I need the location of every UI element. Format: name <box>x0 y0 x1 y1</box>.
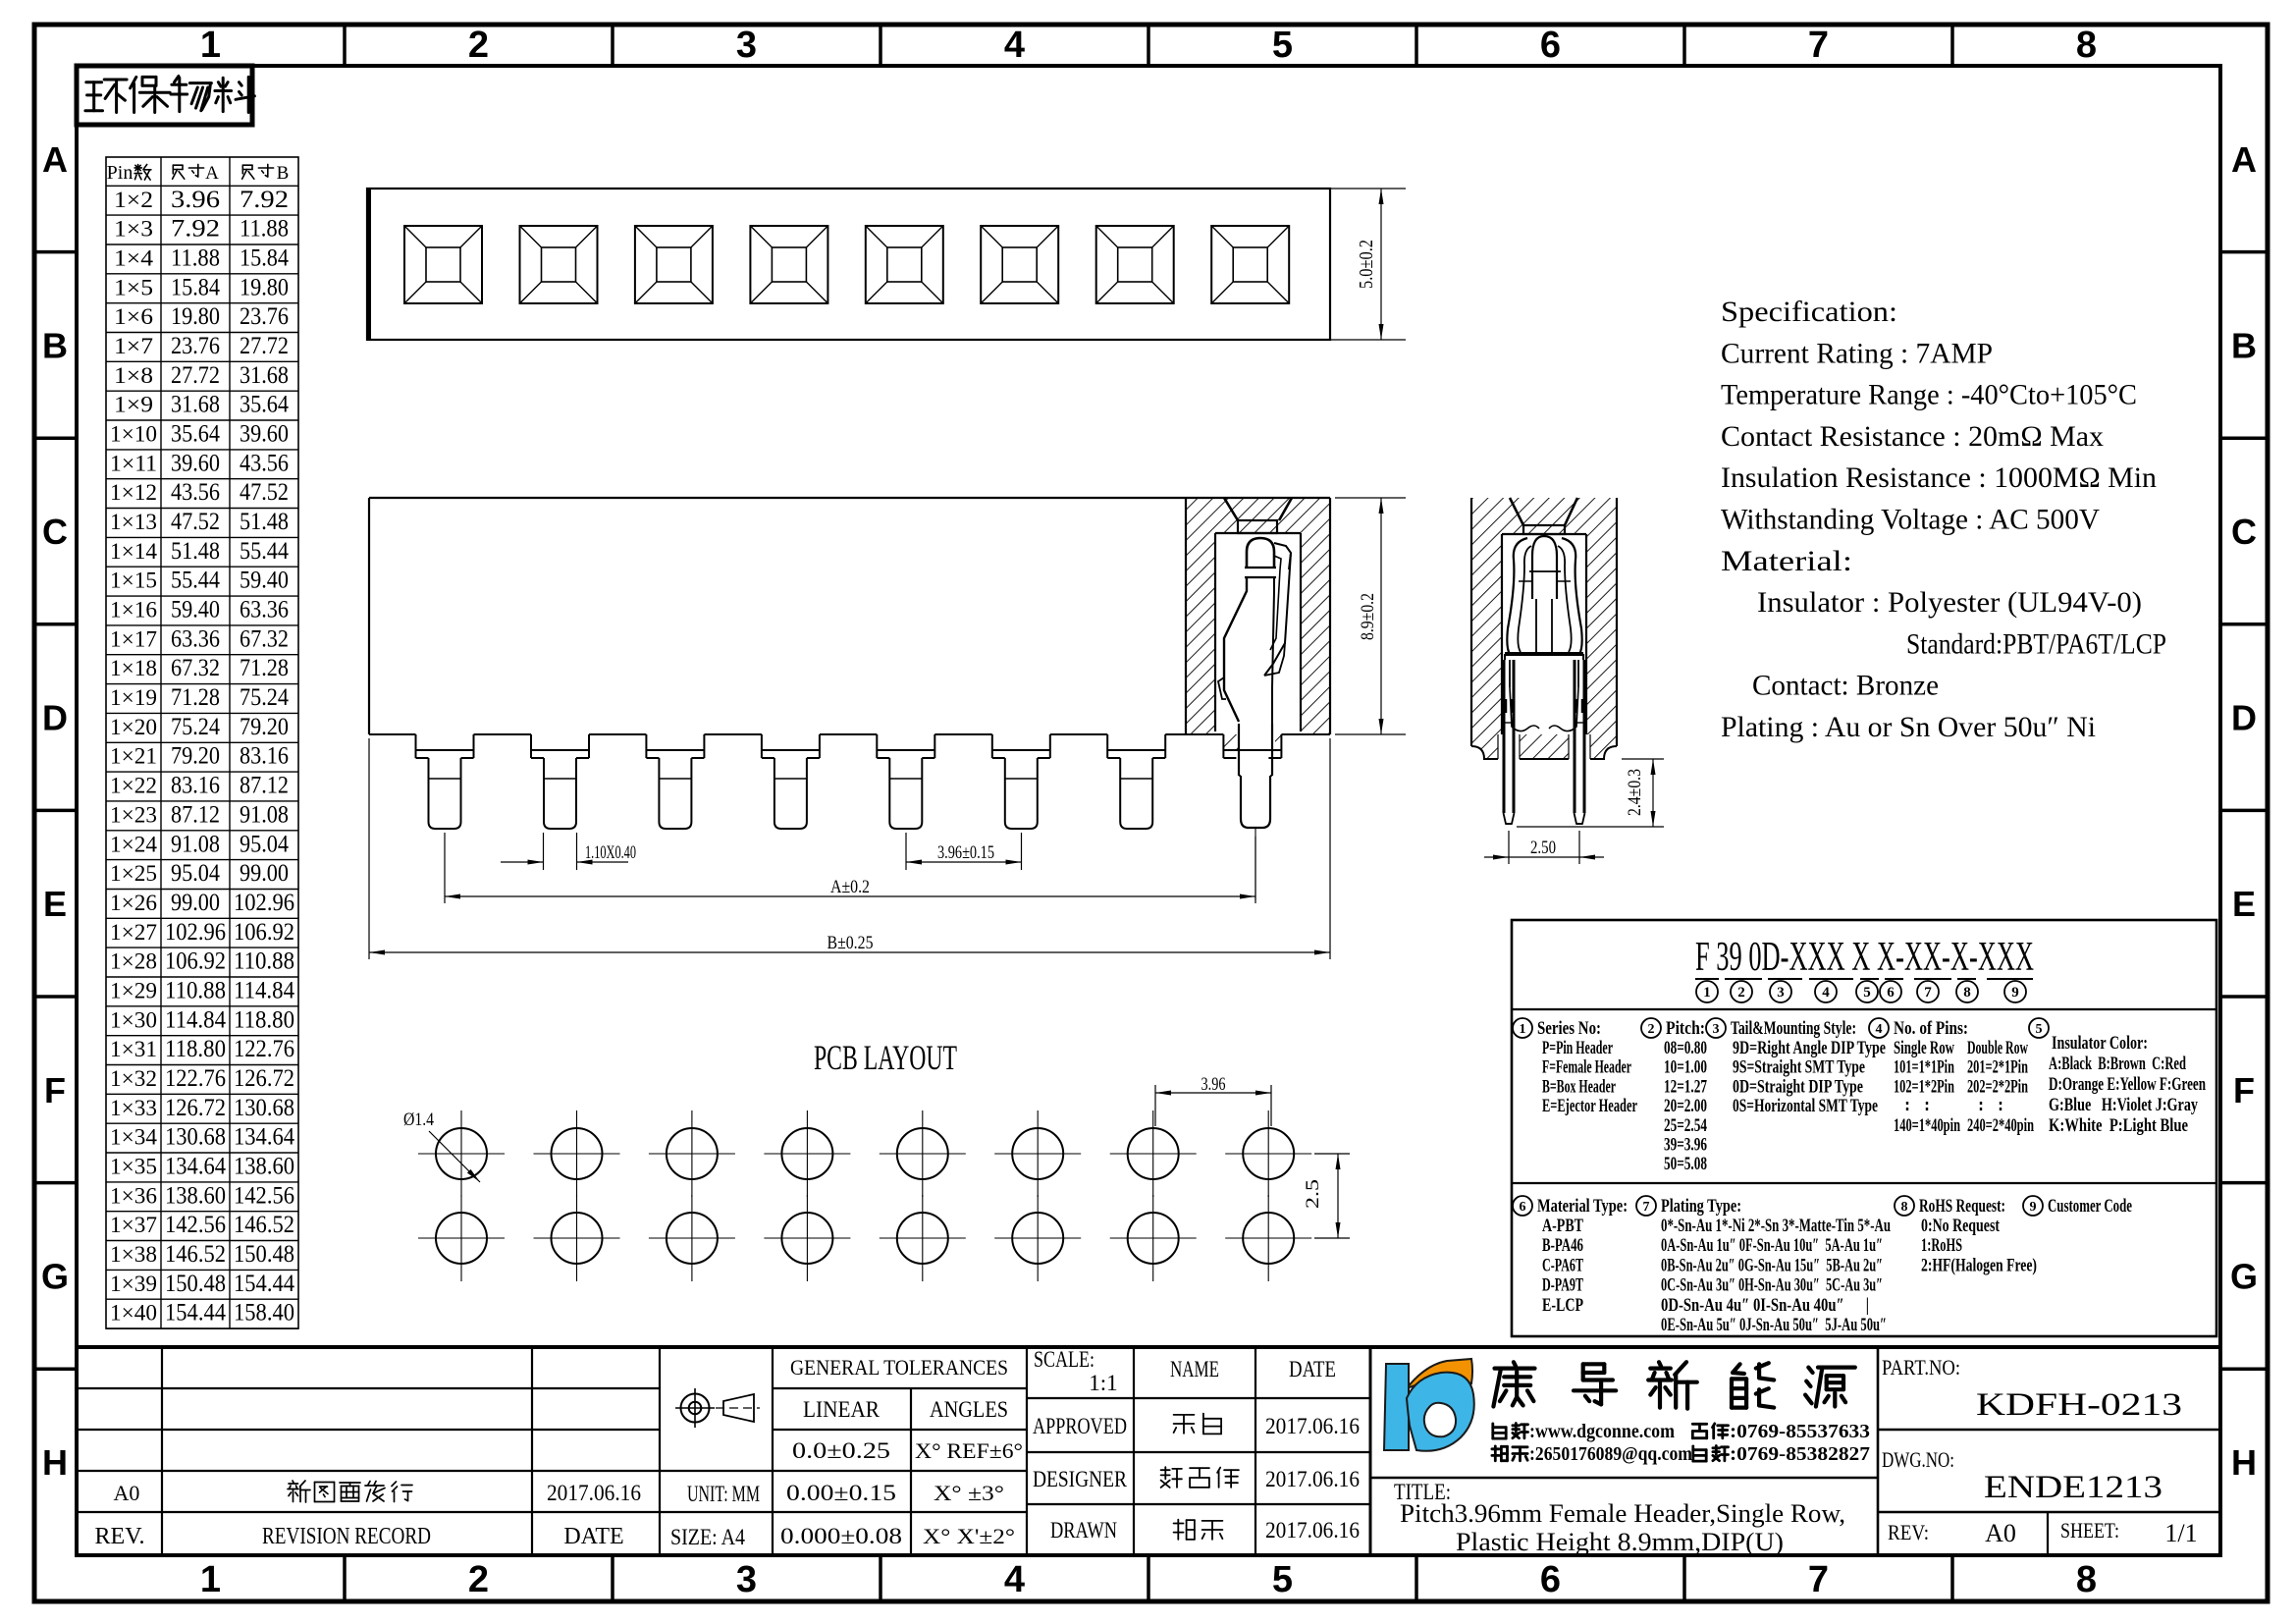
svg-text:5: 5 <box>1863 985 1871 1001</box>
svg-text:87.12: 87.12 <box>171 801 220 828</box>
svg-text:7: 7 <box>1924 985 1932 1001</box>
svg-text:1×32: 1×32 <box>110 1066 157 1091</box>
svg-text:202=2*2Pin: 202=2*2Pin <box>1967 1076 2028 1097</box>
svg-text:67.32: 67.32 <box>171 655 220 681</box>
svg-text:1×39: 1×39 <box>110 1272 157 1296</box>
svg-text:154.44: 154.44 <box>234 1271 294 1297</box>
svg-text:95.04: 95.04 <box>171 860 220 887</box>
svg-text:4: 4 <box>1876 1022 1883 1037</box>
svg-text:39.60: 39.60 <box>171 450 220 476</box>
svg-text:A: A <box>205 163 219 184</box>
svg-text:11.88: 11.88 <box>171 245 220 272</box>
svg-text:134.64: 134.64 <box>234 1124 294 1151</box>
svg-text:122.76: 122.76 <box>234 1036 294 1062</box>
svg-text:43.56: 43.56 <box>240 450 289 476</box>
svg-text:23.76: 23.76 <box>240 303 289 330</box>
svg-text:1×23: 1×23 <box>110 802 157 827</box>
svg-text:39.60: 39.60 <box>240 421 289 448</box>
svg-text:0C-Sn-Au 3u″ 0H-Sn-Au 30u″ 5C: 0C-Sn-Au 3u″ 0H-Sn-Au 30u″ 5C-Au 3u″ <box>1661 1275 1883 1296</box>
svg-text:Material Type:: Material Type: <box>1537 1196 1628 1217</box>
svg-text:F=Female Header: F=Female Header <box>1542 1057 1631 1078</box>
svg-text:63.36: 63.36 <box>171 625 220 652</box>
svg-text:KDFH-0213: KDFH-0213 <box>1976 1387 2182 1423</box>
svg-text:C: C <box>2231 512 2257 552</box>
svg-text:0:No Request: 0:No Request <box>1921 1216 2000 1236</box>
svg-text:20=2.00: 20=2.00 <box>1664 1096 1707 1116</box>
svg-text:1:1: 1:1 <box>1089 1371 1117 1395</box>
svg-text:35.64: 35.64 <box>171 421 220 448</box>
svg-text:2.5: 2.5 <box>1303 1179 1323 1209</box>
svg-text:1×35: 1×35 <box>110 1155 157 1179</box>
svg-text:Ø1.4: Ø1.4 <box>403 1110 434 1130</box>
svg-text:7.92: 7.92 <box>171 216 220 243</box>
svg-text:7: 7 <box>1643 1200 1650 1215</box>
svg-text:23.76: 23.76 <box>171 333 220 359</box>
svg-text:79.20: 79.20 <box>171 743 220 770</box>
svg-text:1×30: 1×30 <box>110 1007 157 1032</box>
svg-text:140=1*40pin: 140=1*40pin <box>1894 1115 1960 1136</box>
svg-text:150.48: 150.48 <box>234 1241 294 1268</box>
svg-text:47.52: 47.52 <box>171 509 220 535</box>
svg-text:Insulator Color:: Insulator Color: <box>2052 1033 2148 1054</box>
svg-text:A: A <box>2231 139 2257 180</box>
svg-text:122.76: 122.76 <box>165 1065 226 1092</box>
svg-text:1×16: 1×16 <box>110 598 157 623</box>
svg-text:102=1*2Pin: 102=1*2Pin <box>1894 1076 1954 1097</box>
svg-text:Pitch3.96mm Female Header,Sing: Pitch3.96mm Female Header,Single Row, <box>1400 1499 1845 1528</box>
svg-text:1/1: 1/1 <box>2164 1519 2197 1547</box>
svg-text:1×10: 1×10 <box>110 422 157 447</box>
svg-text:1×28: 1×28 <box>110 949 157 974</box>
svg-text:51.48: 51.48 <box>240 509 289 535</box>
svg-text:Plastic Height 8.9mm,DIP(U): Plastic Height 8.9mm,DIP(U) <box>1456 1528 1784 1556</box>
svg-text:Material:: Material: <box>1721 545 1852 577</box>
svg-text:0D-Sn-Au 4u″ 0I-Sn-Au 40u″: 0D-Sn-Au 4u″ 0I-Sn-Au 40u″ | <box>1661 1295 1869 1316</box>
svg-text:27.72: 27.72 <box>240 333 289 359</box>
svg-text:75.24: 75.24 <box>240 684 289 711</box>
svg-text:D:Orange E:Yellow F:Green: D:Orange E:Yellow F:Green <box>2049 1074 2206 1095</box>
svg-text:Plating : Au or Sn Over 50u″ N: Plating : Au or Sn Over 50u″ Ni <box>1721 711 2096 743</box>
svg-text:150.48: 150.48 <box>165 1271 226 1297</box>
svg-text:F 39 0D-XXX X X-XX-X-XXX: F 39 0D-XXX X X-XX-X-XXX <box>1695 935 2034 980</box>
svg-text:D-PA9T: D-PA9T <box>1542 1275 1583 1296</box>
svg-text:0B-Sn-Au 2u″ 0G-Sn-Au 15u″ 5B: 0B-Sn-Au 2u″ 0G-Sn-Au 15u″ 5B-Au 2u″ <box>1661 1255 1883 1275</box>
svg-text:1×20: 1×20 <box>110 715 157 739</box>
svg-text:101=1*1Pin: 101=1*1Pin <box>1894 1057 1954 1078</box>
svg-text:1×9: 1×9 <box>114 393 153 417</box>
svg-text:9: 9 <box>2030 1200 2037 1215</box>
svg-text:91.08: 91.08 <box>171 831 220 857</box>
svg-text:B: B <box>2231 325 2257 365</box>
svg-text:1×3: 1×3 <box>114 217 153 242</box>
svg-text:5: 5 <box>1272 25 1293 66</box>
svg-text:91.08: 91.08 <box>240 801 289 828</box>
svg-text:1×21: 1×21 <box>110 744 157 769</box>
svg-text:ANGLES: ANGLES <box>930 1397 1008 1422</box>
svg-text:A±0.2: A±0.2 <box>830 877 870 897</box>
svg-text:Series No:: Series No: <box>1537 1018 1601 1039</box>
svg-text:Pin: Pin <box>107 162 133 184</box>
svg-text:12=1.27: 12=1.27 <box>1664 1076 1707 1097</box>
svg-text:ENDE1213: ENDE1213 <box>1984 1470 2163 1505</box>
svg-text::www.dgconne.com: :www.dgconne.com <box>1529 1421 1675 1442</box>
svg-text:99.00: 99.00 <box>240 860 289 887</box>
svg-text:75.24: 75.24 <box>171 714 220 740</box>
svg-text:3: 3 <box>736 25 757 66</box>
svg-text:142.56: 142.56 <box>234 1182 294 1209</box>
svg-text:2.4±0.3: 2.4±0.3 <box>1625 769 1645 816</box>
svg-text:3.96: 3.96 <box>171 187 220 213</box>
svg-text:106.92: 106.92 <box>234 919 294 946</box>
svg-text:Current Rating : 7AMP: Current Rating : 7AMP <box>1721 337 1993 369</box>
svg-text:31.68: 31.68 <box>240 362 289 389</box>
svg-text:0E-Sn-Au 5u″ 0J-Sn-Au 50u″ 5J: 0E-Sn-Au 5u″ 0J-Sn-Au 50u″ 5J-Au 50u″ <box>1661 1315 1887 1335</box>
svg-text:Withstanding Voltage : AC 500V: Withstanding Voltage : AC 500V <box>1721 504 2100 536</box>
svg-text:25=2.54: 25=2.54 <box>1664 1115 1707 1136</box>
svg-text:55.44: 55.44 <box>171 568 220 594</box>
svg-text:55.44: 55.44 <box>240 538 289 565</box>
svg-text:83.16: 83.16 <box>171 773 220 799</box>
svg-text:DATE: DATE <box>1289 1357 1336 1381</box>
svg-text:1×7: 1×7 <box>114 334 153 358</box>
svg-text:5.0±0.2: 5.0±0.2 <box>1356 240 1377 289</box>
svg-text:H: H <box>2231 1442 2257 1483</box>
svg-text:71.28: 71.28 <box>240 655 289 681</box>
svg-text:5: 5 <box>2036 1022 2043 1037</box>
svg-text:114.84: 114.84 <box>234 978 294 1004</box>
svg-text:95.04: 95.04 <box>240 831 289 857</box>
svg-text:SCALE:: SCALE: <box>1034 1347 1095 1372</box>
svg-text:50=5.08: 50=5.08 <box>1664 1154 1707 1174</box>
svg-text:6: 6 <box>1540 1559 1561 1600</box>
svg-text:UNIT: MM: UNIT: MM <box>687 1482 760 1506</box>
svg-text:4: 4 <box>1822 985 1830 1001</box>
svg-text:130.68: 130.68 <box>165 1124 226 1151</box>
svg-text:Pitch:: Pitch: <box>1666 1018 1705 1039</box>
svg-text:P=Pin Header: P=Pin Header <box>1542 1038 1613 1058</box>
svg-text:08=0.80: 08=0.80 <box>1664 1038 1707 1058</box>
svg-text:1×36: 1×36 <box>110 1183 157 1208</box>
svg-text:REV:: REV: <box>1888 1520 1929 1544</box>
svg-text:SIZE: A4: SIZE: A4 <box>670 1525 745 1549</box>
svg-text:9D=Right Angle DIP Type: 9D=Right Angle DIP Type <box>1733 1038 1886 1058</box>
svg-text:Plating Type:: Plating Type: <box>1661 1196 1741 1217</box>
svg-text:X° ±3°: X° ±3° <box>934 1481 1004 1505</box>
svg-text:LINEAR: LINEAR <box>803 1397 881 1422</box>
svg-text:3: 3 <box>1777 985 1785 1001</box>
svg-text:F: F <box>44 1070 66 1110</box>
svg-text:H: H <box>42 1442 68 1483</box>
svg-text:3: 3 <box>736 1559 757 1600</box>
svg-text:1×4: 1×4 <box>114 246 154 271</box>
svg-text:146.52: 146.52 <box>234 1212 294 1238</box>
svg-text:83.16: 83.16 <box>240 743 289 770</box>
svg-text:31.68: 31.68 <box>171 392 220 418</box>
svg-text:63.36: 63.36 <box>240 597 289 623</box>
svg-text:130.68: 130.68 <box>234 1095 294 1121</box>
svg-text:201=2*1Pin: 201=2*1Pin <box>1967 1057 2028 1078</box>
svg-text:A0: A0 <box>114 1481 140 1505</box>
svg-text:1×18: 1×18 <box>110 656 157 680</box>
svg-text:138.60: 138.60 <box>165 1182 226 1209</box>
svg-text:1: 1 <box>1520 1022 1526 1037</box>
svg-text:114.84: 114.84 <box>165 1006 226 1033</box>
svg-text:142.56: 142.56 <box>165 1212 226 1238</box>
svg-text:D: D <box>42 698 68 738</box>
svg-text:2: 2 <box>468 1559 489 1600</box>
svg-text:2.50: 2.50 <box>1530 838 1556 858</box>
svg-text:2017.06.16: 2017.06.16 <box>1265 1518 1360 1543</box>
svg-text:1×33: 1×33 <box>110 1096 157 1120</box>
svg-text:154.44: 154.44 <box>165 1300 226 1326</box>
svg-text:X° REF±6°: X° REF±6° <box>915 1438 1023 1463</box>
svg-text:10=1.00: 10=1.00 <box>1664 1057 1707 1078</box>
svg-text:146.52: 146.52 <box>165 1241 226 1268</box>
svg-text:0A-Sn-Au 1u″ 0F-Sn-Au 10u″ 5A: 0A-Sn-Au 1u″ 0F-Sn-Au 10u″ 5A-Au 1u″ <box>1661 1235 1883 1256</box>
svg-text:1.10X0.40: 1.10X0.40 <box>585 842 636 863</box>
svg-text:7.92: 7.92 <box>240 187 289 213</box>
svg-text:Insulator : Polyester (UL94V-0: Insulator : Polyester (UL94V-0) <box>1757 586 2142 619</box>
svg-text:NAME: NAME <box>1170 1357 1219 1381</box>
svg-text:1×8: 1×8 <box>114 363 153 388</box>
svg-text:102.96: 102.96 <box>234 890 294 916</box>
svg-text:15.84: 15.84 <box>171 274 220 300</box>
svg-text:8.9±0.2: 8.9±0.2 <box>1358 593 1378 640</box>
svg-text:126.72: 126.72 <box>165 1095 226 1121</box>
svg-text:43.56: 43.56 <box>171 479 220 506</box>
svg-text:1×31: 1×31 <box>110 1037 157 1061</box>
svg-text:71.28: 71.28 <box>171 684 220 711</box>
svg-text:8: 8 <box>2076 25 2097 66</box>
svg-text:REVISION RECORD: REVISION RECORD <box>262 1524 431 1549</box>
svg-text:B-PA46: B-PA46 <box>1542 1235 1583 1256</box>
svg-text:27.72: 27.72 <box>171 362 220 389</box>
svg-text:99.00: 99.00 <box>171 890 220 916</box>
svg-text:3.96: 3.96 <box>1201 1074 1226 1095</box>
svg-text:110.88: 110.88 <box>234 948 294 975</box>
svg-text:Insulation Resistance : 1000MΩ: Insulation Resistance : 1000MΩ Min <box>1721 461 2157 494</box>
svg-text:1×14: 1×14 <box>110 539 157 564</box>
svg-text:1×12: 1×12 <box>110 480 157 505</box>
svg-text:6: 6 <box>1520 1200 1526 1215</box>
svg-text:X° X'±2°: X° X'±2° <box>923 1524 1015 1548</box>
svg-text:PART.NO:: PART.NO: <box>1882 1355 1960 1380</box>
svg-text:PCB LAYOUT: PCB LAYOUT <box>814 1038 957 1077</box>
svg-text:2: 2 <box>1648 1022 1655 1037</box>
svg-text:1:RoHS: 1:RoHS <box>1921 1235 1962 1256</box>
svg-text:240=2*40pin: 240=2*40pin <box>1967 1115 2034 1136</box>
svg-text:158.40: 158.40 <box>234 1300 294 1326</box>
svg-text:0.000±0.08: 0.000±0.08 <box>780 1524 902 1548</box>
svg-text:G: G <box>41 1256 69 1296</box>
svg-text:1×22: 1×22 <box>110 774 157 798</box>
svg-text::0769-85537633: :0769-85537633 <box>1730 1421 1870 1442</box>
svg-text:138.60: 138.60 <box>234 1154 294 1180</box>
svg-text:Tail&Mounting Style:: Tail&Mounting Style: <box>1731 1018 1856 1039</box>
svg-text:9: 9 <box>2011 985 2019 1001</box>
svg-text:51.48: 51.48 <box>171 538 220 565</box>
svg-text:19.80: 19.80 <box>240 274 289 300</box>
svg-text:REV.: REV. <box>95 1524 145 1549</box>
svg-text:Specification:: Specification: <box>1721 296 1897 328</box>
svg-text:1: 1 <box>1703 985 1711 1001</box>
svg-text:6: 6 <box>1887 985 1895 1001</box>
svg-text:1×11: 1×11 <box>110 451 157 475</box>
svg-text:1×40: 1×40 <box>110 1301 157 1326</box>
svg-text:1×17: 1×17 <box>110 626 157 651</box>
svg-text::2650176089@qq.com: :2650176089@qq.com <box>1529 1443 1692 1465</box>
svg-text:1×34: 1×34 <box>110 1125 157 1150</box>
svg-text:SHEET:: SHEET: <box>2060 1518 2119 1543</box>
svg-text:59.40: 59.40 <box>240 568 289 594</box>
svg-text:126.72: 126.72 <box>234 1065 294 1092</box>
svg-text:47.52: 47.52 <box>240 479 289 506</box>
svg-text:DRAWN: DRAWN <box>1050 1518 1117 1543</box>
svg-text:F: F <box>2233 1070 2255 1110</box>
svg-text:0.0±0.25: 0.0±0.25 <box>792 1438 890 1463</box>
svg-text:DESIGNER: DESIGNER <box>1033 1467 1128 1491</box>
svg-text:118.80: 118.80 <box>234 1006 294 1033</box>
svg-text:106.92: 106.92 <box>165 948 226 975</box>
svg-text:B±0.25: B±0.25 <box>828 933 874 953</box>
svg-text:7: 7 <box>1808 25 1829 66</box>
svg-text:DATE: DATE <box>563 1524 623 1549</box>
svg-text:K:White P:Light Blue: K:White P:Light Blue <box>2049 1115 2188 1136</box>
svg-text:4: 4 <box>1004 25 1025 66</box>
svg-text:A: A <box>42 139 68 180</box>
svg-text:Customer Code: Customer Code <box>2048 1196 2132 1217</box>
svg-text:A-PBT: A-PBT <box>1542 1216 1583 1236</box>
svg-text:Single Row: Single Row <box>1894 1038 1954 1058</box>
svg-text:E=Ejector Header: E=Ejector Header <box>1542 1096 1637 1116</box>
svg-text:1×13: 1×13 <box>110 510 157 534</box>
svg-text:Double Row: Double Row <box>1967 1038 2028 1058</box>
svg-text:0.00±0.15: 0.00±0.15 <box>786 1481 896 1505</box>
svg-text:1×27: 1×27 <box>110 920 157 945</box>
svg-text:GENERAL TOLERANCES: GENERAL TOLERANCES <box>790 1355 1008 1380</box>
svg-text:1×6: 1×6 <box>114 304 153 329</box>
svg-text:7: 7 <box>1808 1559 1829 1600</box>
svg-text:A:Black B:Brown C:Red: A:Black B:Brown C:Red <box>2049 1054 2186 1074</box>
svg-text:5: 5 <box>1272 1559 1293 1600</box>
svg-text:2017.06.16: 2017.06.16 <box>1265 1414 1360 1438</box>
svg-text:1×24: 1×24 <box>110 832 157 856</box>
svg-text:RoHS Request:: RoHS Request: <box>1919 1196 2005 1217</box>
svg-text:39=3.96: 39=3.96 <box>1664 1135 1707 1156</box>
svg-text:118.80: 118.80 <box>165 1036 226 1062</box>
svg-text:B: B <box>42 325 68 365</box>
svg-text:E: E <box>43 884 67 924</box>
svg-text:E: E <box>2232 884 2256 924</box>
svg-text:6: 6 <box>1540 25 1561 66</box>
svg-text:B=Box Header: B=Box Header <box>1542 1076 1616 1097</box>
svg-text:19.80: 19.80 <box>171 303 220 330</box>
svg-text:0*-Sn-Au 1*-Ni 2*-Sn 3*-Matte-: 0*-Sn-Au 1*-Ni 2*-Sn 3*-Matte-Tin 5*-Au <box>1661 1216 1891 1236</box>
svg-text:1: 1 <box>200 25 221 66</box>
svg-text:8: 8 <box>1963 985 1971 1001</box>
svg-text:134.64: 134.64 <box>165 1154 226 1180</box>
svg-text:67.32: 67.32 <box>240 625 289 652</box>
svg-text:59.40: 59.40 <box>171 597 220 623</box>
svg-text:No. of Pins:: No. of Pins: <box>1894 1018 1968 1039</box>
svg-text:15.84: 15.84 <box>240 245 289 272</box>
svg-text:102.96: 102.96 <box>165 919 226 946</box>
svg-text:Contact Resistance : 20mΩ Max: Contact Resistance : 20mΩ Max <box>1721 420 2104 453</box>
svg-text:1×2: 1×2 <box>114 188 153 212</box>
svg-text:2: 2 <box>468 25 489 66</box>
svg-text:110.88: 110.88 <box>165 978 226 1004</box>
svg-text:C-PA6T: C-PA6T <box>1542 1255 1583 1275</box>
svg-text:2017.06.16: 2017.06.16 <box>547 1481 641 1505</box>
svg-text:0S=Horizontal SMT Type: 0S=Horizontal SMT Type <box>1733 1096 1878 1116</box>
svg-text:G:Blue H:Violet J:Gray: G:Blue H:Violet J:Gray <box>2049 1095 2198 1115</box>
svg-text:35.64: 35.64 <box>240 392 289 418</box>
svg-text:8: 8 <box>2076 1559 2097 1600</box>
svg-text:1×37: 1×37 <box>110 1213 157 1237</box>
svg-text:9S=Straight SMT Type: 9S=Straight SMT Type <box>1733 1057 1865 1078</box>
svg-text:G: G <box>2230 1256 2258 1296</box>
svg-text:4: 4 <box>1004 1559 1025 1600</box>
svg-text:0D=Straight DIP Type: 0D=Straight DIP Type <box>1733 1076 1863 1097</box>
svg-text:1×15: 1×15 <box>110 568 157 593</box>
svg-text:8: 8 <box>1901 1200 1908 1215</box>
svg-text:3.96±0.15: 3.96±0.15 <box>937 842 994 863</box>
svg-text:1×19: 1×19 <box>110 685 157 710</box>
svg-text:APPROVED: APPROVED <box>1033 1414 1127 1438</box>
svg-text::0769-85382827: :0769-85382827 <box>1730 1443 1870 1465</box>
svg-text:E-LCP: E-LCP <box>1542 1295 1583 1316</box>
svg-text:D: D <box>2231 698 2257 738</box>
svg-text:1: 1 <box>200 1559 221 1600</box>
svg-text:1×25: 1×25 <box>110 861 157 886</box>
svg-text:1×26: 1×26 <box>110 891 157 915</box>
svg-text:2: 2 <box>1737 985 1745 1001</box>
svg-text:2:HF(Halogen Free): 2:HF(Halogen Free) <box>1921 1255 2037 1275</box>
svg-text:C: C <box>42 512 68 552</box>
svg-text:DWG.NO:: DWG.NO: <box>1882 1447 1954 1472</box>
svg-text:Temperature Range : -40°Cto+10: Temperature Range : -40°Cto+105°C <box>1721 379 2137 411</box>
svg-text:Contact: Bronze: Contact: Bronze <box>1752 670 1939 702</box>
svg-text:79.20: 79.20 <box>240 714 289 740</box>
svg-text:A0: A0 <box>1985 1519 2016 1547</box>
svg-text:1×5: 1×5 <box>114 275 153 299</box>
svg-text:B: B <box>277 163 290 184</box>
svg-text:Standard:PBT/PA6T/LCP: Standard:PBT/PA6T/LCP <box>1906 627 2166 660</box>
svg-text:11.88: 11.88 <box>240 216 289 243</box>
svg-text:87.12: 87.12 <box>240 773 289 799</box>
svg-text:3: 3 <box>1713 1022 1720 1037</box>
svg-text:2017.06.16: 2017.06.16 <box>1265 1467 1360 1491</box>
svg-text:1×38: 1×38 <box>110 1242 157 1267</box>
svg-text:1×29: 1×29 <box>110 979 157 1003</box>
